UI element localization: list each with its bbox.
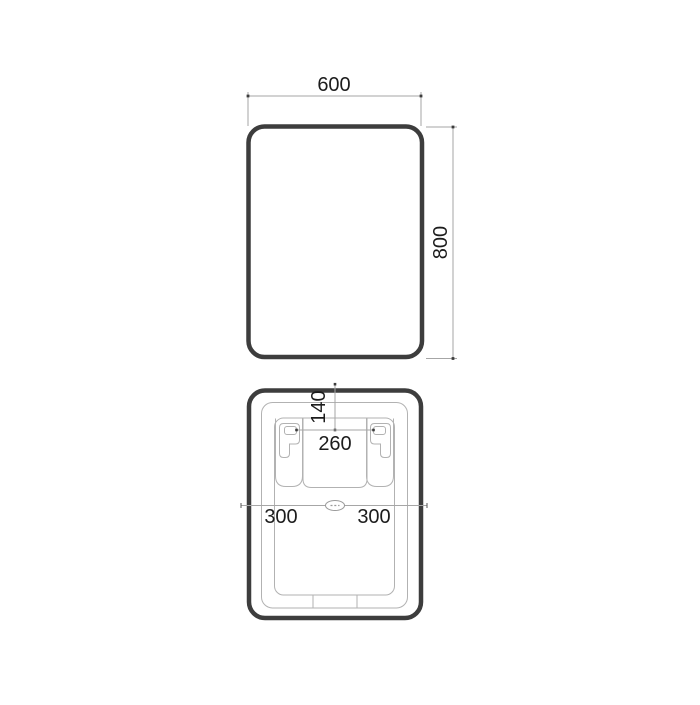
rear-left-center-label: 300 xyxy=(264,506,297,528)
front-width-label: 600 xyxy=(317,74,350,96)
dimension-drawing: 600 800 xyxy=(0,0,700,700)
front-height-dimension: 800 xyxy=(426,126,457,360)
rear-right-center-label: 300 xyxy=(357,506,390,528)
touch-sensor xyxy=(326,501,345,511)
rear-top-offset-label: 140 xyxy=(308,390,330,423)
drawing-canvas: 600 800 xyxy=(0,0,700,700)
front-view-outline xyxy=(249,127,423,358)
front-width-dimension: 600 xyxy=(247,74,423,126)
front-height-label: 800 xyxy=(430,226,452,259)
front-view: 600 800 xyxy=(247,74,457,360)
rear-bracket-spacing-label: 260 xyxy=(318,433,351,455)
rear-view: 140 260 300 300 xyxy=(241,383,427,618)
